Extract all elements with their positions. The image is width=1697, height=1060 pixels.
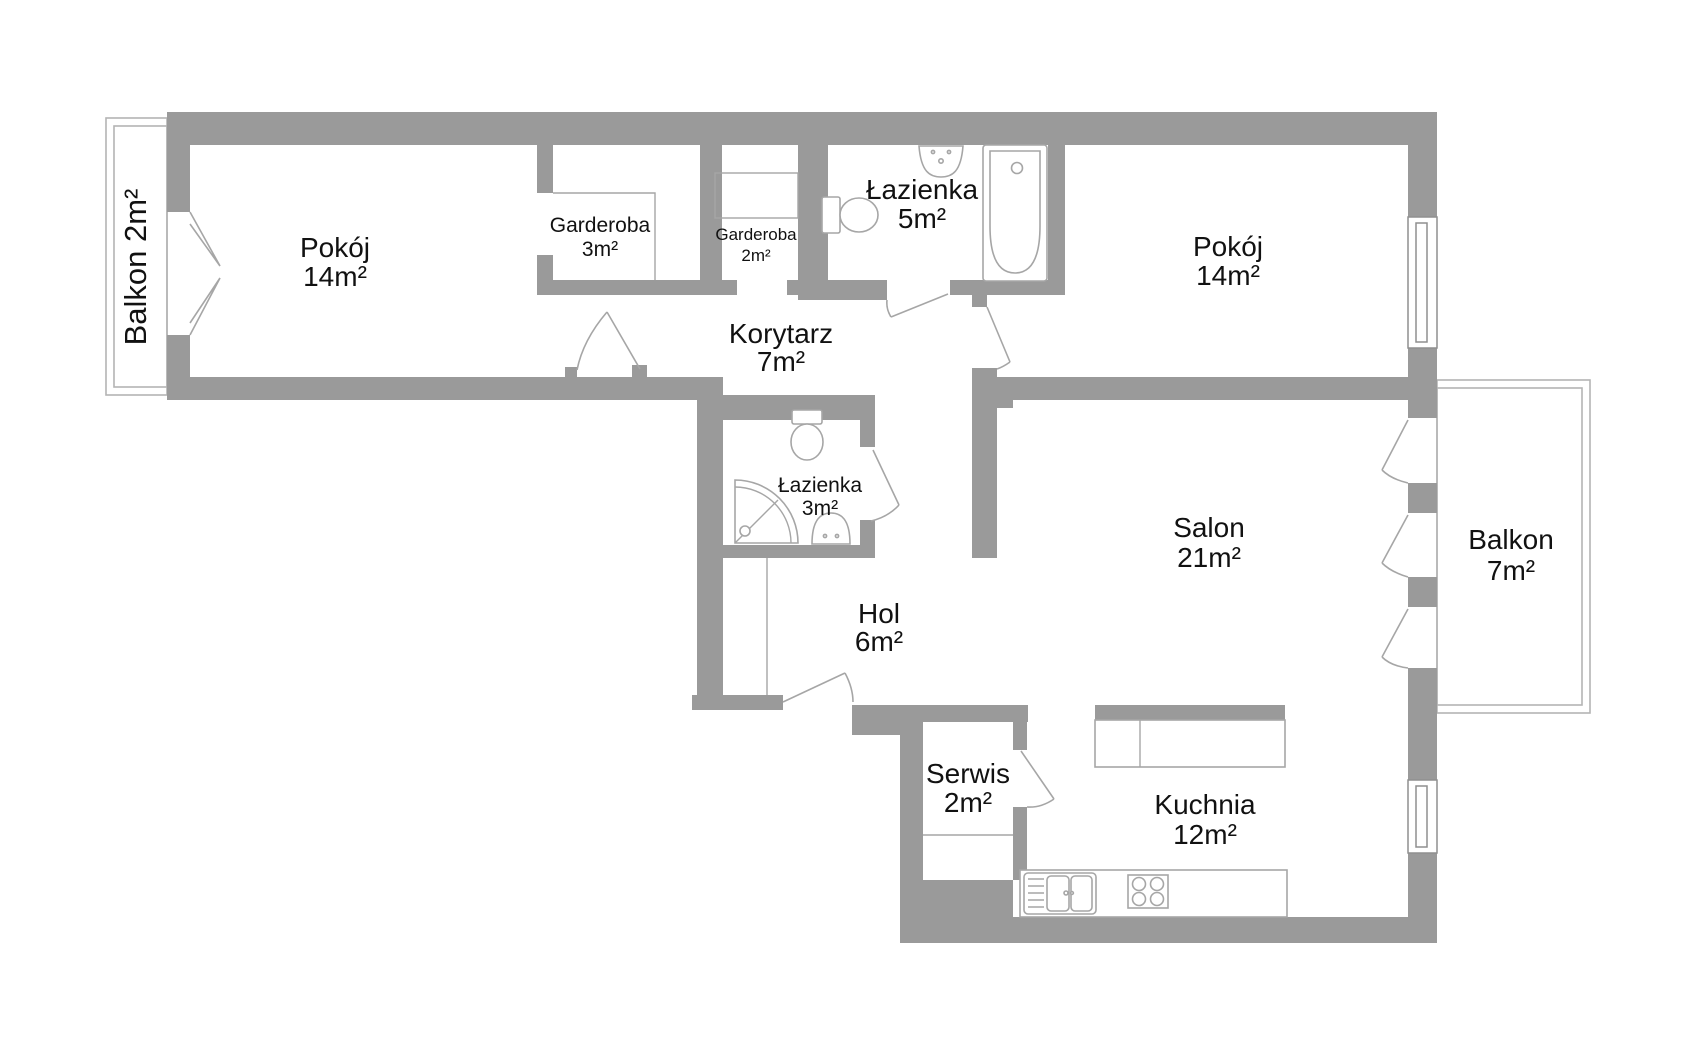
wall-serwis-right-upper [1013,705,1027,750]
wall-bottom [900,917,1437,943]
wall-left-upper [167,145,190,212]
label-garderoba2-name: Garderoba [715,225,797,244]
wall-right-d [1408,577,1437,607]
label-serwis-area: 2m² [944,787,992,818]
wall-top [167,112,1437,145]
door-entrance [783,673,853,702]
label-lazienka3-name: Łazienka [778,474,862,497]
wall-left-lower [167,335,190,377]
label-balkon-right-name: Balkon [1468,524,1554,555]
wall-serwis-top-block [852,705,900,735]
label-kuchnia-area: 12m² [1173,819,1237,850]
wall-pokoj-garderoba-upper [537,145,553,193]
label-balkon-left: Balkon 2m² [118,189,153,346]
label-salon-area: 21m² [1177,542,1241,573]
wall-pokoj-garderoba-lower [537,255,553,280]
label-balkon-right-area: 7m² [1487,555,1535,586]
label-lazienka3-area: 3m² [802,497,838,520]
wall-right-c [1408,483,1437,513]
garderoba2-closet [715,173,798,218]
wall-lazienka5-right [1048,145,1065,295]
floor-plan-page: Balkon 2m² Pokój 14m² Garderoba 3m² Gard… [0,0,1697,1060]
label-hol-area: 6m² [855,626,903,657]
door-lazienka3 [871,450,899,521]
label-serwis-name: Serwis [926,758,1010,789]
label-korytarz-area: 7m² [757,346,805,377]
wall-lazienka5-bottom-left [798,280,887,300]
door-serwis [1021,751,1054,807]
kitchen-sink-fixture [1024,873,1096,914]
wall-lazienka3-right-upper [860,420,875,447]
toilet-fixture-lazienka3 [791,410,823,460]
door-pokoj-left [577,312,640,370]
kitchen-island [1095,720,1285,767]
window-pokoj-right [1408,217,1437,348]
label-pokoj-left-area: 14m² [303,261,367,292]
label-pokoj-right-name: Pokój [1193,231,1263,262]
door-balcony-left-french [190,212,220,335]
bathtub-fixture [983,145,1047,281]
label-salon-name: Salon [1173,512,1245,543]
wall-korytarz-bottom [167,377,723,400]
door-balcony-salon-3 [1382,609,1408,668]
label-lazienka5-area: 5m² [898,203,946,234]
wall-garderoba3-bottom [537,280,737,295]
wall-right-a [1408,145,1437,217]
wall-right-f [1408,853,1437,917]
wall-lazienka3-right-lower [860,520,875,545]
wall-hol-left [697,377,723,710]
window-kuchnia [1408,780,1437,853]
wall-salon-top [972,377,1437,400]
wall-right-e [1408,668,1437,780]
label-hol-name: Hol [858,598,900,629]
wall-korytarz-door-stub [972,295,987,307]
wall-serwis-bottom [923,880,1013,917]
wall-garderoba2-stub [787,280,798,295]
room-labels: Balkon 2m² Pokój 14m² Garderoba 3m² Gard… [118,174,1554,850]
wall-garderoba3-right [700,145,722,280]
door-pokoj-right [987,307,1010,369]
label-korytarz-name: Korytarz [729,318,833,349]
door-balcony-salon-2 [1382,515,1408,577]
stove-fixture [1128,875,1168,908]
label-pokoj-left-name: Pokój [300,232,370,263]
door-lazienka5 [887,294,948,317]
floor-plan-drawing: Balkon 2m² Pokój 14m² Garderoba 3m² Gard… [0,0,1697,1060]
wall-serwis-right-lower [1013,807,1027,880]
wall-lazienka5-bottom-right [950,280,1063,295]
label-garderoba2-area: 2m² [741,246,771,265]
wall-pokoj-door-stub-a [565,367,577,377]
sink-fixture-lazienka5 [919,146,963,177]
wall-right-b [1408,348,1437,418]
wall-salon-notch [997,400,1013,408]
wall-serwis-left [900,722,923,917]
label-garderoba3-name: Garderoba [550,214,651,237]
door-balcony-salon-1 [1382,420,1408,483]
kitchen-island-back [1095,705,1285,720]
wall-lazienka3-bottom [723,545,875,558]
label-lazienka5-name: Łazienka [866,174,979,205]
label-kuchnia-name: Kuchnia [1154,789,1256,820]
label-garderoba3-area: 3m² [582,238,618,261]
label-pokoj-right-area: 14m² [1196,260,1260,291]
